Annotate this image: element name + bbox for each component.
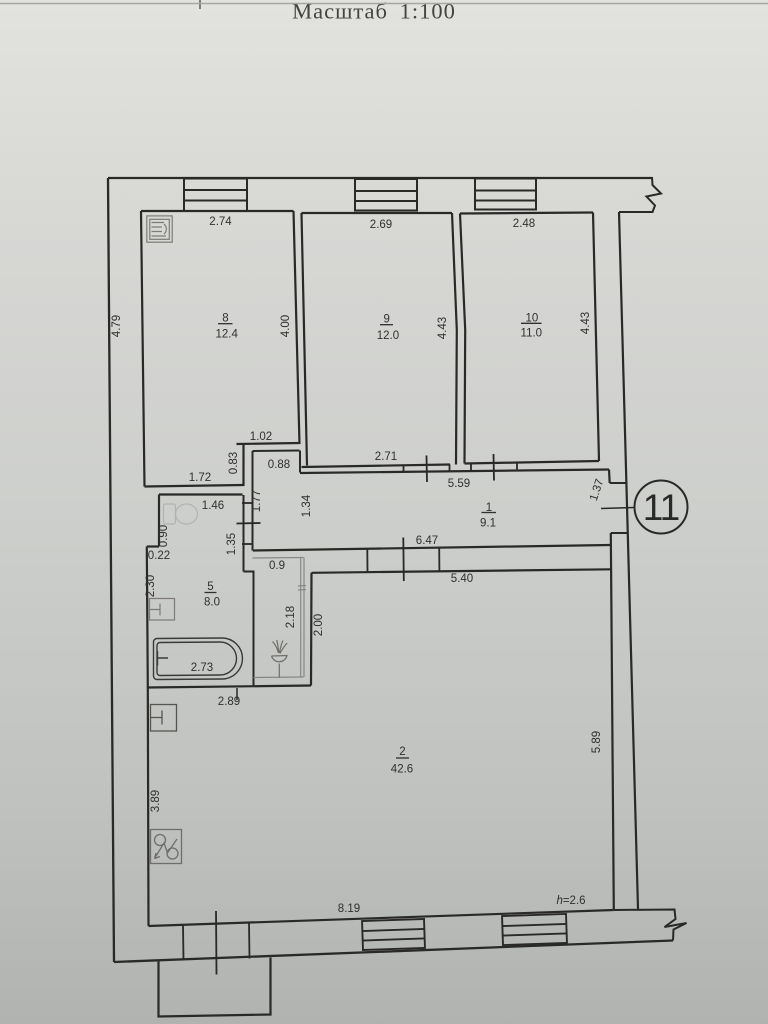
svg-text:h=2.6: h=2.6	[556, 895, 585, 907]
svg-text:1.35: 1.35	[226, 533, 238, 555]
svg-text:9.1: 9.1	[480, 518, 496, 530]
svg-text:8: 8	[222, 313, 228, 325]
svg-text:1.02: 1.02	[250, 431, 272, 443]
svg-text:1.46: 1.46	[202, 500, 224, 512]
svg-text:5: 5	[207, 581, 213, 593]
svg-text:0.83: 0.83	[228, 452, 240, 474]
svg-text:1.77: 1.77	[251, 490, 263, 512]
svg-text:2.71: 2.71	[375, 451, 397, 463]
svg-text:2.89: 2.89	[218, 696, 240, 708]
svg-text:2: 2	[399, 746, 405, 758]
svg-text:3.89: 3.89	[150, 790, 162, 812]
svg-text:1.37: 1.37	[588, 478, 606, 503]
svg-text:5.40: 5.40	[451, 573, 473, 585]
svg-text:0.90: 0.90	[158, 525, 170, 547]
svg-text:4.43: 4.43	[580, 312, 592, 334]
svg-text:2.30: 2.30	[145, 575, 157, 597]
svg-text:9: 9	[383, 313, 389, 325]
svg-text:4.79: 4.79	[111, 315, 123, 337]
svg-text:4.43: 4.43	[437, 317, 449, 339]
svg-text:6.47: 6.47	[416, 535, 438, 547]
svg-text:1.34: 1.34	[301, 494, 313, 517]
svg-text:5.89: 5.89	[591, 731, 603, 753]
svg-text:0.88: 0.88	[268, 459, 290, 471]
svg-text:11.0: 11.0	[521, 328, 543, 340]
svg-text:4.00: 4.00	[280, 315, 292, 337]
svg-text:12.0: 12.0	[377, 330, 399, 342]
svg-text:0.22: 0.22	[148, 550, 170, 562]
svg-text:2.48: 2.48	[513, 218, 535, 230]
svg-text:8.19: 8.19	[338, 903, 360, 915]
svg-text:2.74: 2.74	[209, 216, 232, 228]
svg-text:2.69: 2.69	[370, 219, 392, 231]
svg-text:11: 11	[643, 487, 679, 528]
svg-text:2.73: 2.73	[191, 662, 213, 674]
svg-text:2.00: 2.00	[313, 614, 325, 636]
svg-text:5.59: 5.59	[448, 478, 470, 490]
svg-text:42.6: 42.6	[391, 764, 413, 776]
svg-text:12.4: 12.4	[216, 329, 239, 341]
svg-text:8.0: 8.0	[204, 597, 220, 609]
svg-text:2.18: 2.18	[285, 606, 297, 628]
svg-text:1.72: 1.72	[189, 472, 211, 484]
svg-text:0.9: 0.9	[269, 560, 285, 572]
